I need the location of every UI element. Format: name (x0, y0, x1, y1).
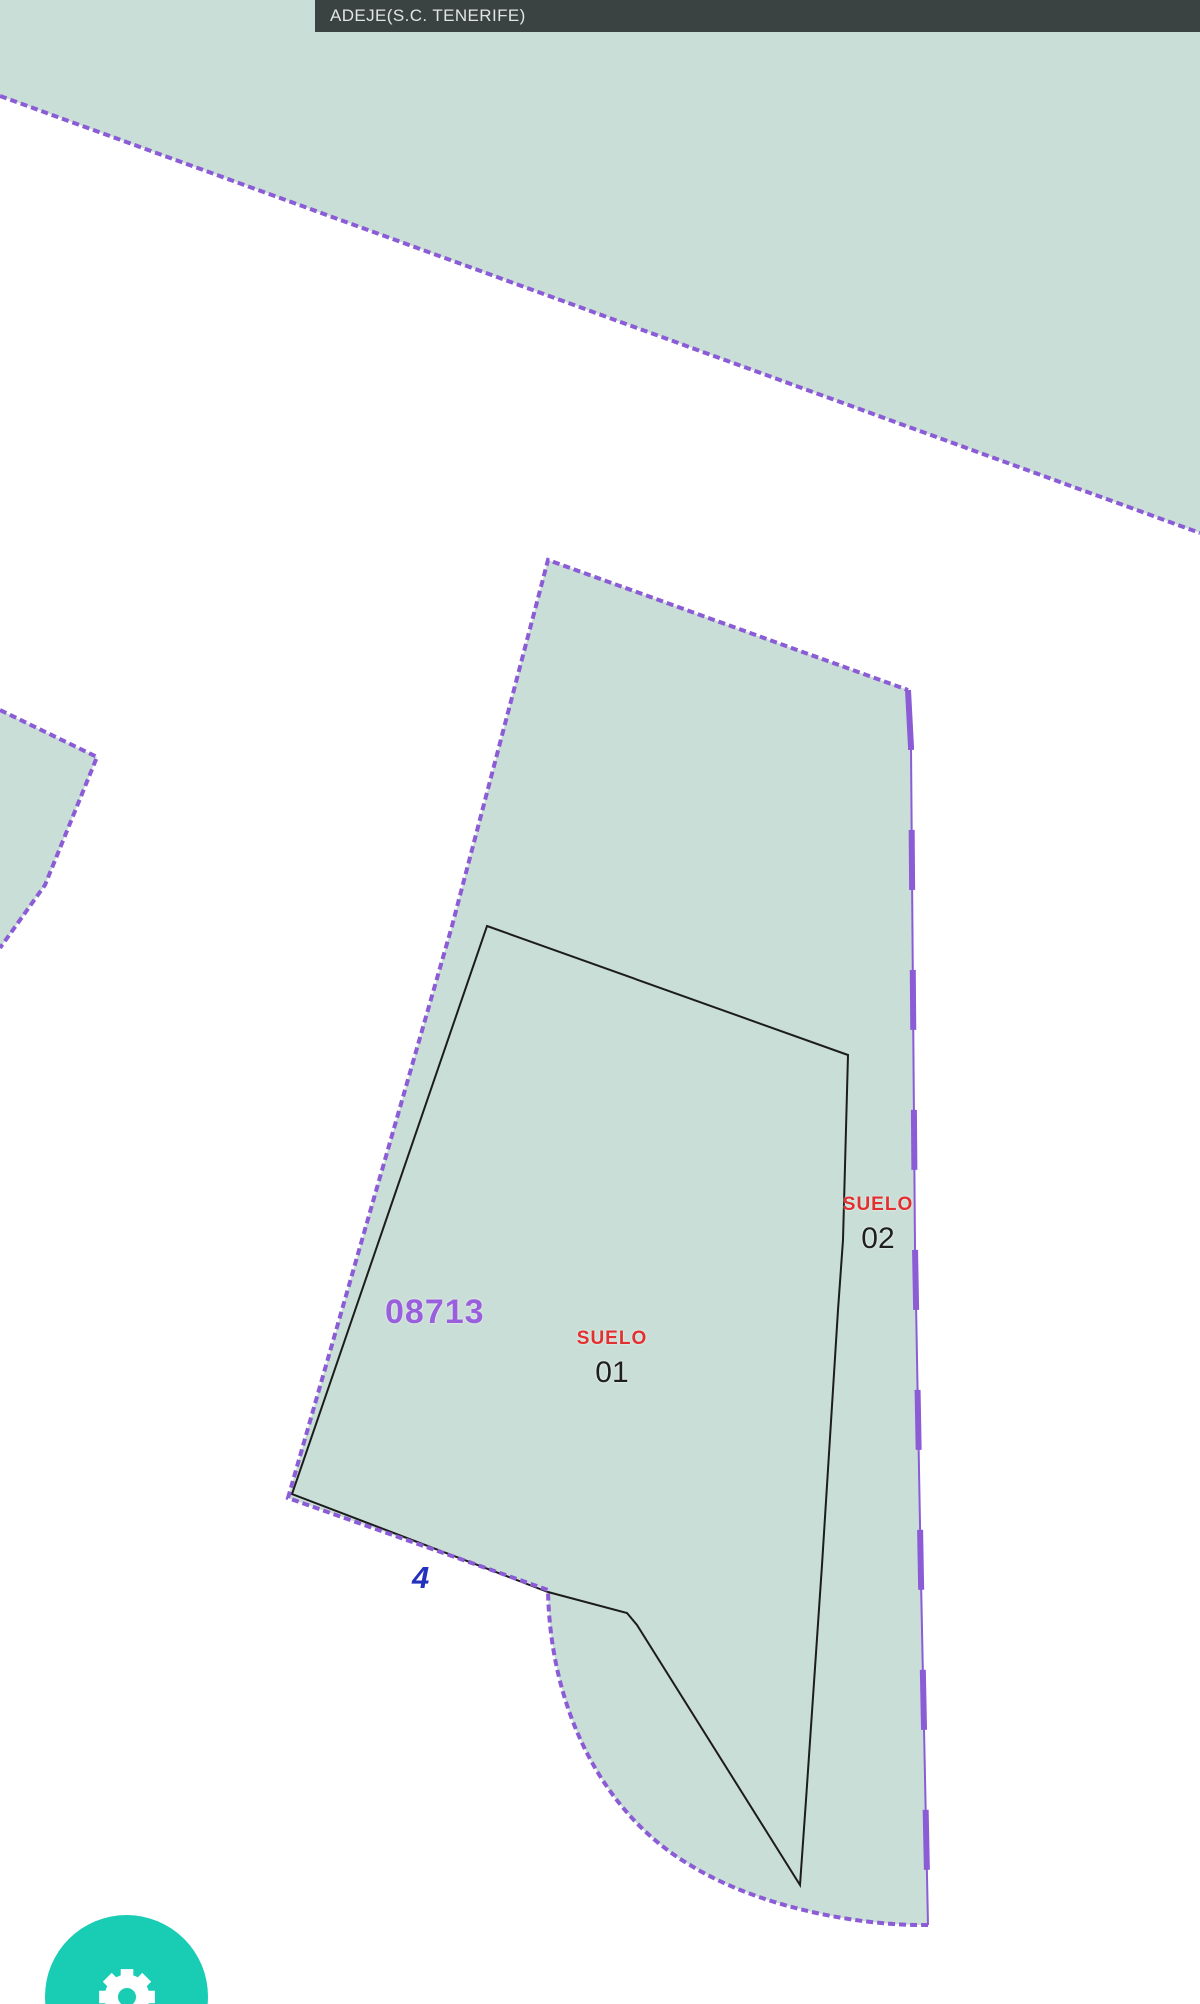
subparcel-01-number: 01 (595, 1356, 628, 1390)
parcel-number-label: 08713 (385, 1293, 485, 1332)
subparcel-01-category: SUELO (577, 1328, 647, 1350)
municipality-label: ADEJE(S.C. TENERIFE) (330, 6, 526, 26)
subparcel-02-label: SUELO 02 (843, 1194, 913, 1256)
subparcel-02-number: 02 (861, 1222, 894, 1256)
gear-icon (91, 1961, 163, 2004)
left-parcel-fragment[interactable] (0, 710, 97, 948)
subparcel-01-label: SUELO 01 (577, 1328, 647, 1390)
municipality-bar: ADEJE(S.C. TENERIFE) (315, 0, 1200, 32)
catastro-map-view: ADEJE(S.C. TENERIFE) 08713 SUELO 01 SUEL… (0, 0, 1200, 2004)
address-number-label: 4 (412, 1560, 429, 1596)
top-parcel-polygon[interactable] (0, 0, 1200, 533)
main-parcel-polygon[interactable] (288, 560, 928, 1925)
subparcel-02-category: SUELO (843, 1194, 913, 1216)
cadastral-map[interactable] (0, 0, 1200, 2004)
